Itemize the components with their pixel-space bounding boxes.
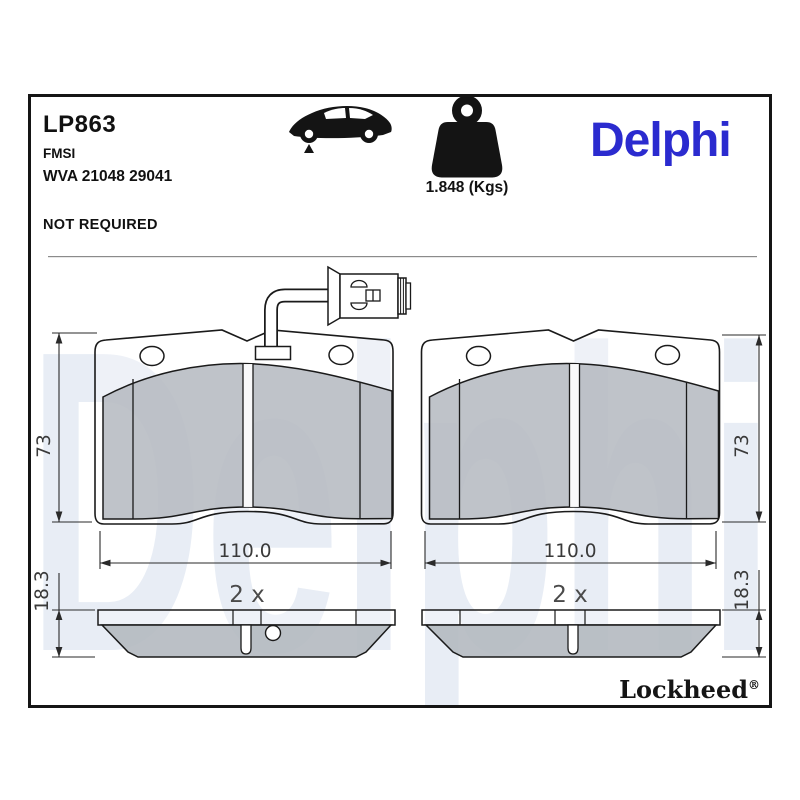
groove-slot xyxy=(241,625,251,654)
dim-left-width: 110.0 xyxy=(219,541,272,562)
dim-right-thickness: 18.3 xyxy=(732,569,753,610)
right-pad-side-view xyxy=(422,610,720,657)
lockheed-logo: Lockheed® xyxy=(598,675,760,704)
dim-left-height: 73 xyxy=(34,434,55,458)
sensor-connector xyxy=(328,267,411,325)
dim-right-width: 110.0 xyxy=(544,541,597,562)
lockheed-text: Lockheed xyxy=(619,675,748,704)
left-pad-plan-view xyxy=(95,330,393,524)
qty-left: 2 x xyxy=(229,582,265,608)
qty-right: 2 x xyxy=(552,582,588,608)
sensor-terminal xyxy=(256,347,291,360)
dim-left-thickness: 18.3 xyxy=(32,570,53,611)
registered-mark: ® xyxy=(748,678,760,692)
datasheet-page: LP863 FMSI WVA 21048 29041 NOT REQUIRED … xyxy=(0,0,800,800)
right-pad-plan-view xyxy=(422,330,720,524)
dim-right-height: 73 xyxy=(732,434,753,458)
left-pad-side-view xyxy=(98,610,395,657)
sensor-hole xyxy=(266,626,281,641)
groove-slot xyxy=(568,625,578,654)
